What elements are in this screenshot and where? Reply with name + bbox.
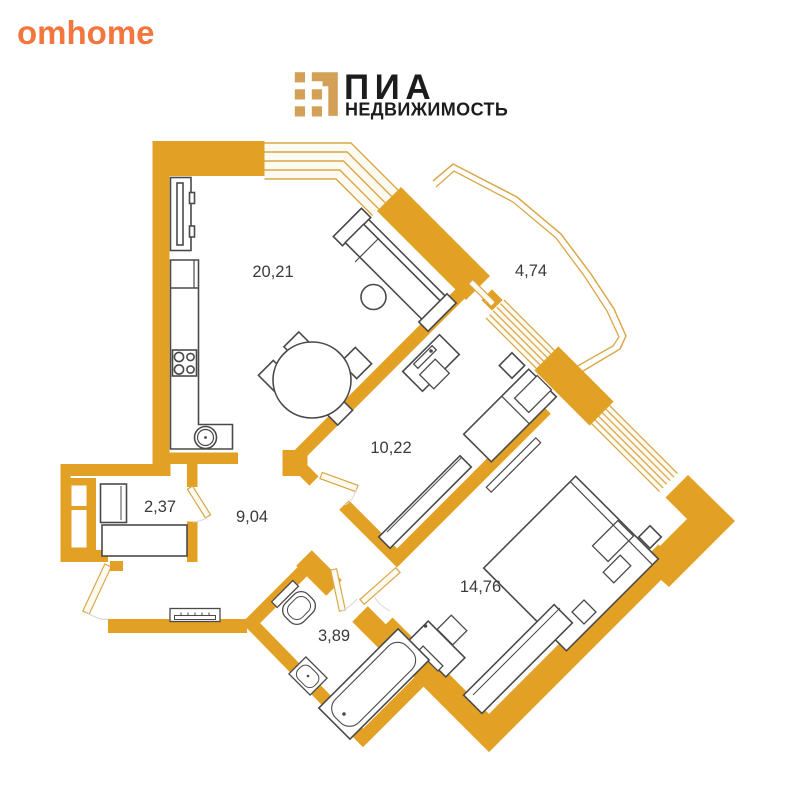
svg-text:4,74: 4,74 xyxy=(515,262,547,280)
svg-text:omhome: omhome xyxy=(17,14,155,51)
svg-text:НЕДВИЖИМОСТЬ: НЕДВИЖИМОСТЬ xyxy=(345,100,508,120)
svg-text:9,04: 9,04 xyxy=(236,508,268,526)
svg-text:20,21: 20,21 xyxy=(252,263,293,281)
svg-text:10,22: 10,22 xyxy=(370,439,411,457)
svg-text:2,37: 2,37 xyxy=(144,498,176,516)
svg-text:3,89: 3,89 xyxy=(318,627,350,645)
svg-text:14,76: 14,76 xyxy=(460,578,501,596)
